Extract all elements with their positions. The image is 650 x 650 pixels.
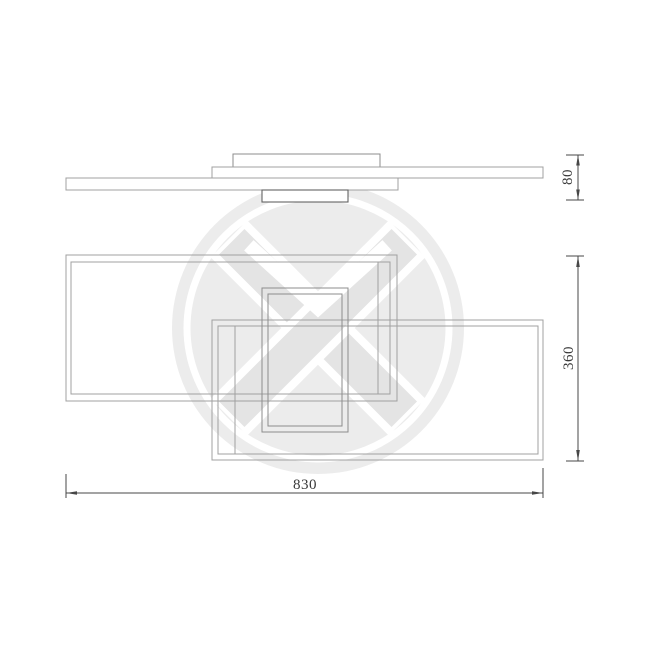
frame-c-profile-bar [212, 167, 543, 178]
dim-360-label: 360 [561, 346, 577, 370]
dim-360-arrow-down [576, 450, 580, 461]
frame-b-profile-bar [262, 190, 348, 202]
dimension-depth-80: 80 [560, 155, 584, 200]
dim-80-label: 80 [560, 169, 576, 185]
frame-a-profile-bar [66, 178, 398, 190]
dim-80-arrow-up [576, 155, 580, 166]
dim-80-arrow-down [576, 190, 580, 201]
dim-360-arrow-up [576, 256, 580, 267]
dim-830-arrow-right [532, 491, 543, 495]
dim-830-arrow-left [66, 491, 77, 495]
watermark-logo-icon [140, 150, 496, 506]
technical-drawing: 80 360 830 [0, 0, 650, 650]
drawing-canvas: 80 360 830 [0, 0, 650, 650]
dimension-height-360: 360 [561, 256, 584, 461]
canopy-profile [233, 154, 380, 167]
dim-830-label: 830 [293, 477, 317, 493]
side-view [66, 154, 543, 202]
